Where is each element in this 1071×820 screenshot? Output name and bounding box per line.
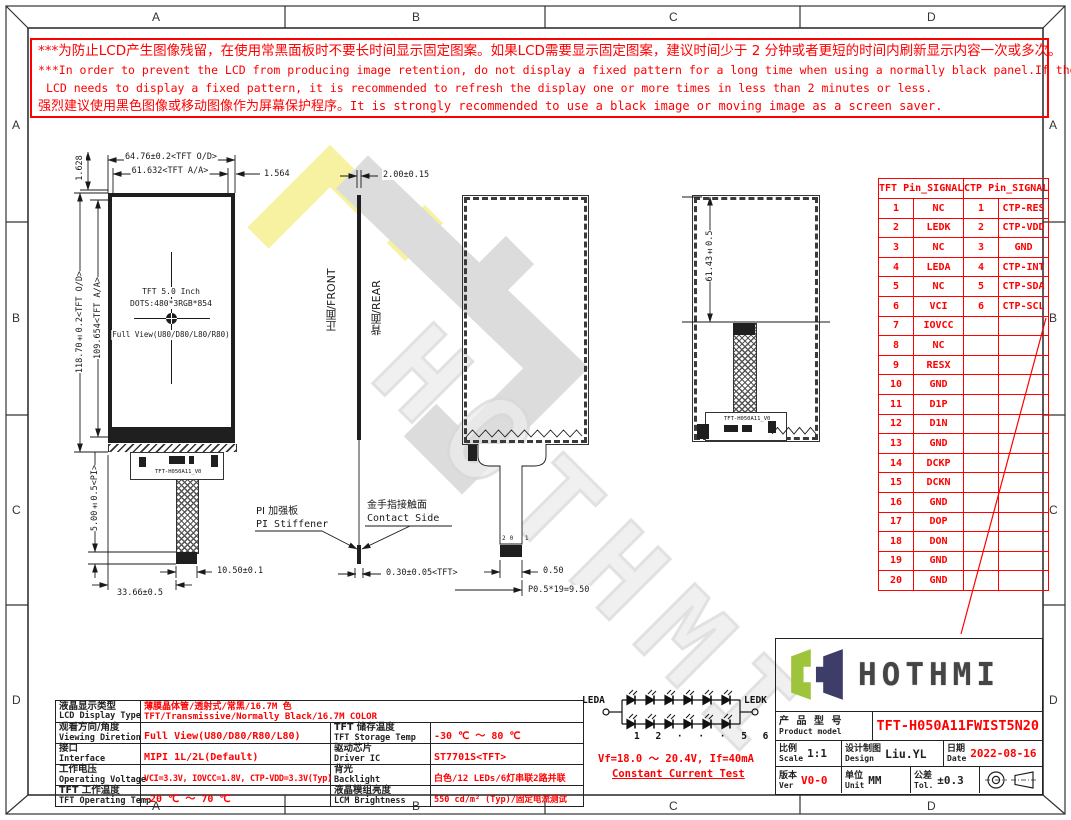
scale-label: 比例Scale	[779, 744, 803, 763]
ctp-pin-header: CTP Pin_SIGNAL	[964, 179, 1049, 199]
zone-bottom-d: D	[927, 799, 936, 813]
warning-line-en2: LCD needs to display a fixed pattern, it…	[38, 79, 1041, 97]
zone-left-b: B	[12, 311, 20, 325]
tft-pin-header: TFT Pin_SIGNAL	[879, 179, 964, 199]
zone-right-d: D	[1049, 693, 1058, 707]
ledk-label: LEDK	[744, 695, 767, 706]
stiffener-label-en: PI Stiffener	[256, 519, 328, 531]
date-label: 日期Date	[947, 744, 966, 763]
spec-optemp-label: TFT 工作温度TFT Operating Temp	[56, 786, 141, 807]
spec-storage-label: TFT 储存温度TFT Storage Temp	[331, 723, 431, 744]
fpc-part-label: TFT-H050A11_V0	[155, 469, 201, 475]
mid-view-component	[468, 445, 477, 461]
spec-driver-value: ST7701S<TFT>	[431, 744, 584, 765]
title-block: HOTHMI 产 品 型 号 Product model TFT-H050A11…	[775, 638, 1043, 795]
brand-row: HOTHMI	[776, 639, 1042, 711]
dim-tail-width: 10.50±0.1	[216, 566, 264, 576]
unit-label: 单位Unit	[845, 771, 864, 790]
drawing-sheet: HOTHMI	[0, 0, 1071, 820]
rear-component	[697, 424, 709, 439]
version-label: 版本Ver	[779, 771, 797, 790]
spec-display-type-value: 薄膜晶体管/透射式/常黑/16.7M 色TFT/Transmissive/Nor…	[141, 701, 584, 723]
dim-od-height: 118.70±0.2<TFT O/D>	[74, 271, 86, 373]
zone-right-a: A	[1049, 118, 1057, 132]
spec-display-type-label: 液晶显示类型LCD Display Type	[56, 701, 141, 723]
spec-viewing-label: 观看方向/角度Viewing Diretion	[56, 723, 141, 744]
spec-viewing-value: Full View(U80/D80/R80/L80)	[141, 723, 331, 744]
stiffener-label-zh: PI 加强板	[256, 506, 298, 518]
front-view-bottom-bezel	[112, 427, 231, 439]
rear-fpc-strip-top	[733, 323, 755, 335]
contact-label-zh: 金手指接触面	[367, 500, 427, 512]
panel-size-label: TFT 5.0 Inch	[141, 287, 201, 297]
zone-left-d: D	[12, 693, 21, 707]
spec-optemp-value: -20 ℃ ～ 70 ℃	[141, 786, 331, 807]
dim-aa-width: 61.632<TFT A/A>	[131, 166, 210, 176]
product-model-value: TFT-H050A11FWIST5N20	[876, 718, 1039, 734]
spec-voltage-value: VCI=3.3V, IOVCC=1.8V, CTP-VDD=3.3V(Typ)	[141, 765, 331, 786]
pin-table-body: 1NC1CTP-RES 2LEDK2CTP-VDD 3NC3GND 4LEDA4…	[879, 199, 1049, 591]
front-view-panel	[108, 193, 235, 443]
spec-backlight-label: 背光Backlight	[331, 765, 431, 786]
spec-interface-label: 接口Interface	[56, 744, 141, 765]
spec-brightness-label: 液晶模组亮度LCM Brightness	[331, 786, 431, 807]
zone-top-a: A	[152, 10, 160, 24]
specification-table: 液晶显示类型LCD Display Type 薄膜晶体管/透射式/常黑/16.7…	[55, 700, 584, 807]
front-side-label: 正面/FRONT	[326, 268, 338, 331]
retention-warning-box: ***为防止LCD产生图像残留，在使用常黑面板时不要长时间显示固定图案。如果LC…	[30, 38, 1049, 118]
led-test-note: Constant Current Test	[612, 768, 745, 780]
panel-view-label: Full View(U80/D80/L80/R80)	[111, 330, 230, 340]
dim-edge-gap: 1.564	[263, 169, 291, 179]
side-view-contact-tip	[357, 545, 361, 564]
dim-od-width: 64.76±0.2<TFT O/D>	[124, 152, 218, 162]
ver-unit-tol-row: 版本Ver V0-0 单位Unit MM 公差Tol. ±0.3	[776, 766, 1042, 793]
spec-brightness-value: 550 cd/m² (Typ)/固定电流测试	[431, 786, 584, 807]
spec-driver-label: 驱动芯片Driver IC	[331, 744, 431, 765]
warning-line-mixed: 强烈建议使用黑色图像或移动图像作为屏幕保护程序。It is strongly r…	[38, 97, 1041, 116]
version-value: V0-0	[801, 774, 828, 787]
side-view-profile	[357, 195, 361, 440]
hothmi-logo-icon	[786, 645, 848, 705]
brand-name: HOTHMI	[858, 657, 1000, 693]
scale-design-date-row: 比例Scale 1:1 设计制图Design Liu.YL 日期Date 202…	[776, 740, 1042, 766]
spec-storage-value: -30 ℃ ～ 80 ℃	[431, 723, 584, 744]
dim-pitch-total: P0.5*19=9.50	[527, 585, 590, 595]
product-model-row: 产 品 型 号 Product model TFT-H050A11FWIST5N…	[776, 711, 1042, 740]
date-value: 2022-08-16	[970, 747, 1036, 760]
scale-value: 1:1	[807, 747, 827, 760]
zone-left-c: C	[12, 503, 21, 517]
warning-line-en1: ***In order to prevent the LCD from prod…	[38, 61, 1041, 79]
dim-pitch-single: 0.50	[542, 566, 564, 576]
projection-symbol-icon	[985, 770, 1037, 790]
led-vf-spec: Vf=18.0 ～ 20.4V, If=40mA	[598, 751, 754, 766]
pin-signal-table: TFT Pin_SIGNAL CTP Pin_SIGNAL 1NC1CTP-RE…	[878, 178, 1049, 591]
front-view-fpc-body: TFT-H050A11_V0	[130, 452, 224, 480]
design-label: 设计制图Design	[845, 744, 881, 763]
spec-voltage-label: 工作电压Operating Voltage	[56, 765, 141, 786]
design-value: Liu.YL	[885, 747, 927, 761]
led-numbers: 1 2 · · · 5 6	[634, 731, 773, 742]
mid-view-contact-bar	[500, 545, 522, 557]
tolerance-label: 公差Tol.	[914, 771, 933, 790]
warning-line-zh: ***为防止LCD产生图像残留，在使用常黑面板时不要长时间显示固定图案。如果LC…	[38, 42, 1041, 61]
dim-fpc-thickness: 0.30±0.05<TFT>	[385, 568, 459, 578]
product-model-label: 产 品 型 号 Product model	[779, 717, 843, 736]
rear-side-label: 背面/REAR	[371, 280, 383, 335]
unit-value: MM	[868, 774, 881, 787]
zone-right-c: C	[1049, 503, 1058, 517]
dim-thickness: 2.00±0.15	[382, 170, 430, 180]
tolerance-value: ±0.3	[937, 774, 964, 787]
zone-top-c: C	[669, 10, 678, 24]
front-view-fpc-contact	[176, 552, 197, 564]
rear-fpc-strip	[733, 323, 757, 415]
dim-aa-height: 109.654<TFT A/A>	[92, 277, 104, 359]
contact-label-en: Contact Side	[367, 513, 439, 525]
rear-fpc-part-label: TFT-H050A11_V0	[724, 416, 770, 422]
dim-fpc-offset: 33.66±0.5	[116, 588, 164, 598]
spec-backlight-value: 白色/12 LEDs/6灯串联2路并联	[431, 765, 584, 786]
dim-pi-length: 5.00±0.5<PI>	[89, 465, 101, 531]
pin-order-marks: 20 1	[501, 534, 533, 544]
rear-stiffener-plate: TFT-H050A11_V0	[705, 412, 787, 441]
zone-top-b: B	[412, 10, 420, 24]
front-view-fpc-tail	[176, 479, 199, 554]
mid-view-outline	[462, 195, 589, 445]
zone-bottom-c: C	[669, 799, 678, 813]
dim-fpc-position: 61.43±0.5	[704, 231, 716, 282]
spec-interface-value: MIPI 1L/2L(Default)	[141, 744, 331, 765]
leda-label: LEDA	[582, 695, 605, 706]
front-view-tape-strip	[108, 444, 237, 452]
dim-top-offset: 1.628	[74, 155, 86, 181]
zone-right-b: B	[1049, 311, 1057, 325]
zone-left-a: A	[12, 118, 20, 132]
panel-dots-label: DOTS:480*3RGB*854	[129, 299, 213, 309]
zone-top-d: D	[927, 10, 936, 24]
